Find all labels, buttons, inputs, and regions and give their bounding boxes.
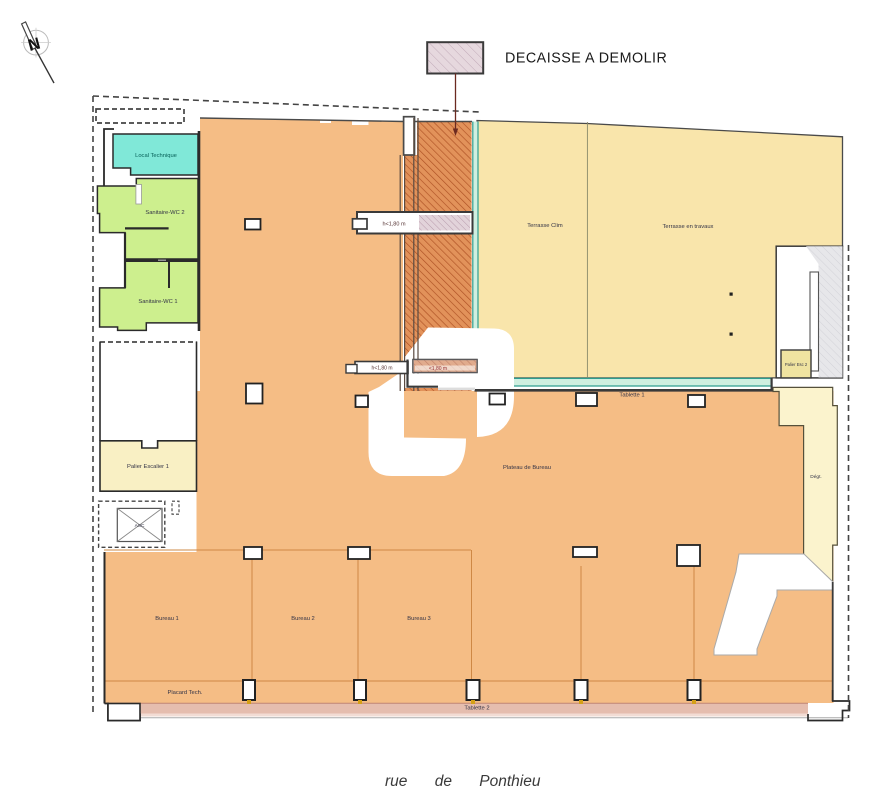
svg-text:Dégt.: Dégt. <box>810 474 821 480</box>
svg-text:Tablette 1: Tablette 1 <box>619 393 644 399</box>
svg-text:Local Technique: Local Technique <box>135 153 177 159</box>
svg-text:Placard Tech.: Placard Tech. <box>167 690 202 696</box>
svg-text:Terrasse Clim: Terrasse Clim <box>527 223 563 229</box>
svg-text:h<1,80 m: h<1,80 m <box>372 366 393 372</box>
svg-text:ASC: ASC <box>135 523 145 529</box>
svg-text:Terrasse en travaux: Terrasse en travaux <box>663 224 714 230</box>
svg-text:Plateau de Bureau: Plateau de Bureau <box>503 465 551 471</box>
svg-text:Tablette 2: Tablette 2 <box>464 706 489 712</box>
svg-text:Sanitaire-WC 1: Sanitaire-WC 1 <box>138 299 177 305</box>
svg-text:h<1,80 m: h<1,80 m <box>382 222 406 228</box>
svg-text:DECAISSE A DEMOLIR: DECAISSE A DEMOLIR <box>505 51 667 67</box>
svg-text:Sanitaire-WC 2: Sanitaire-WC 2 <box>145 210 184 216</box>
svg-text:rue de Ponthieu: rue de Ponthieu <box>385 773 541 790</box>
svg-text:Bureau 1: Bureau 1 <box>155 616 179 622</box>
svg-text:Palier Esc 2: Palier Esc 2 <box>785 362 808 367</box>
svg-text:Bureau 3: Bureau 3 <box>407 616 431 622</box>
svg-text:<1,80 m: <1,80 m <box>429 366 447 372</box>
svg-text:Palier Escalier 1: Palier Escalier 1 <box>127 464 169 470</box>
svg-text:Bureau 2: Bureau 2 <box>291 616 315 622</box>
